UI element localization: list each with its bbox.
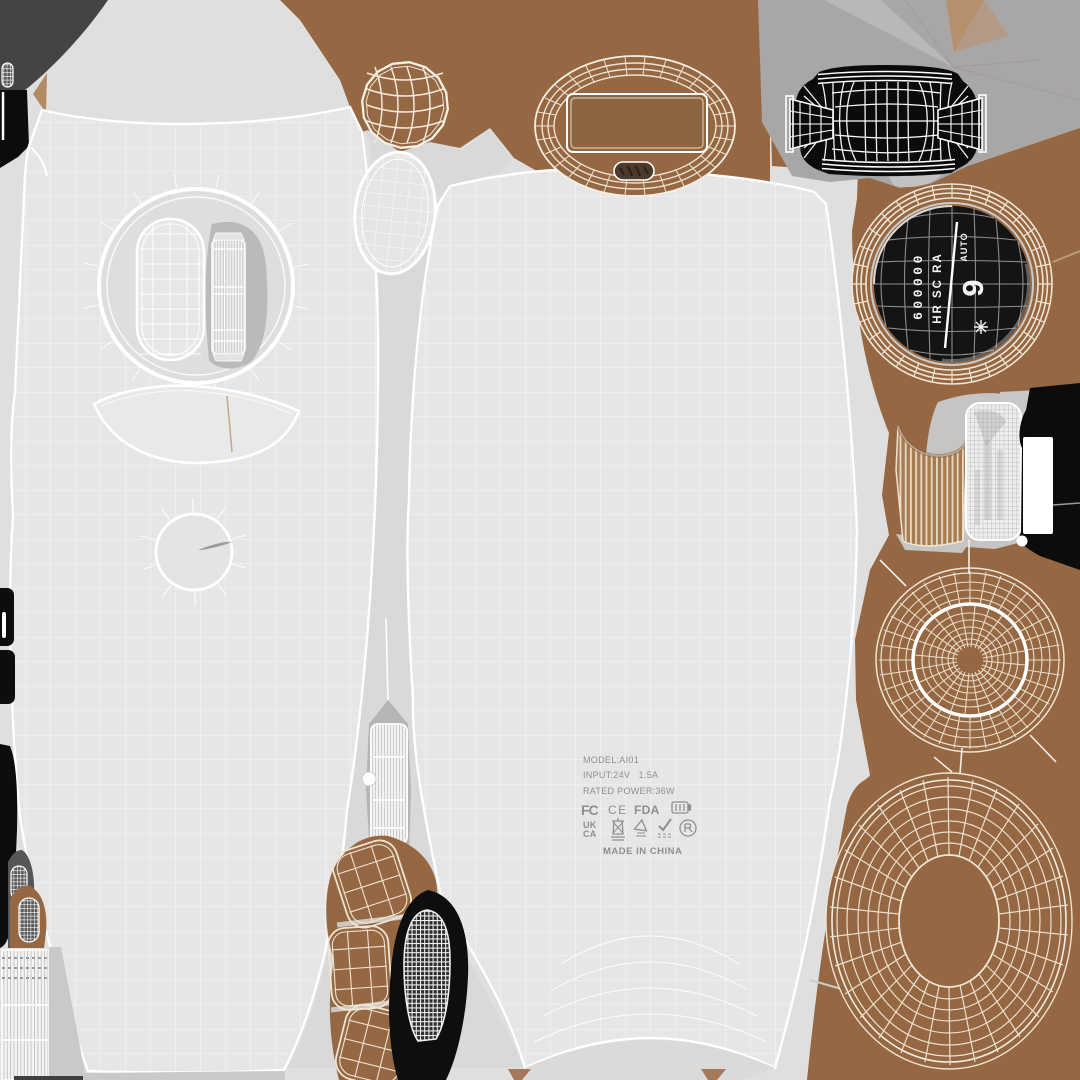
svg-text:CA: CA [583, 829, 597, 839]
svg-text:FC: FC [581, 802, 599, 818]
svg-text:MODEL:AI01: MODEL:AI01 [583, 755, 639, 765]
svg-text:HR SC RA: HR SC RA [932, 252, 944, 324]
svg-text:RATED POWER:36W: RATED POWER:36W [583, 786, 675, 796]
svg-text:MADE IN CHINA: MADE IN CHINA [603, 846, 682, 857]
svg-text:600000: 600000 [911, 252, 926, 320]
svg-text:FDA: FDA [634, 803, 660, 817]
svg-text:CE: CE [608, 803, 628, 817]
svg-text:AUTO: AUTO [959, 232, 969, 261]
svg-text:9: 9 [958, 279, 993, 298]
svg-text:INPUT:24V 1.5A: INPUT:24V 1.5A [583, 770, 658, 780]
